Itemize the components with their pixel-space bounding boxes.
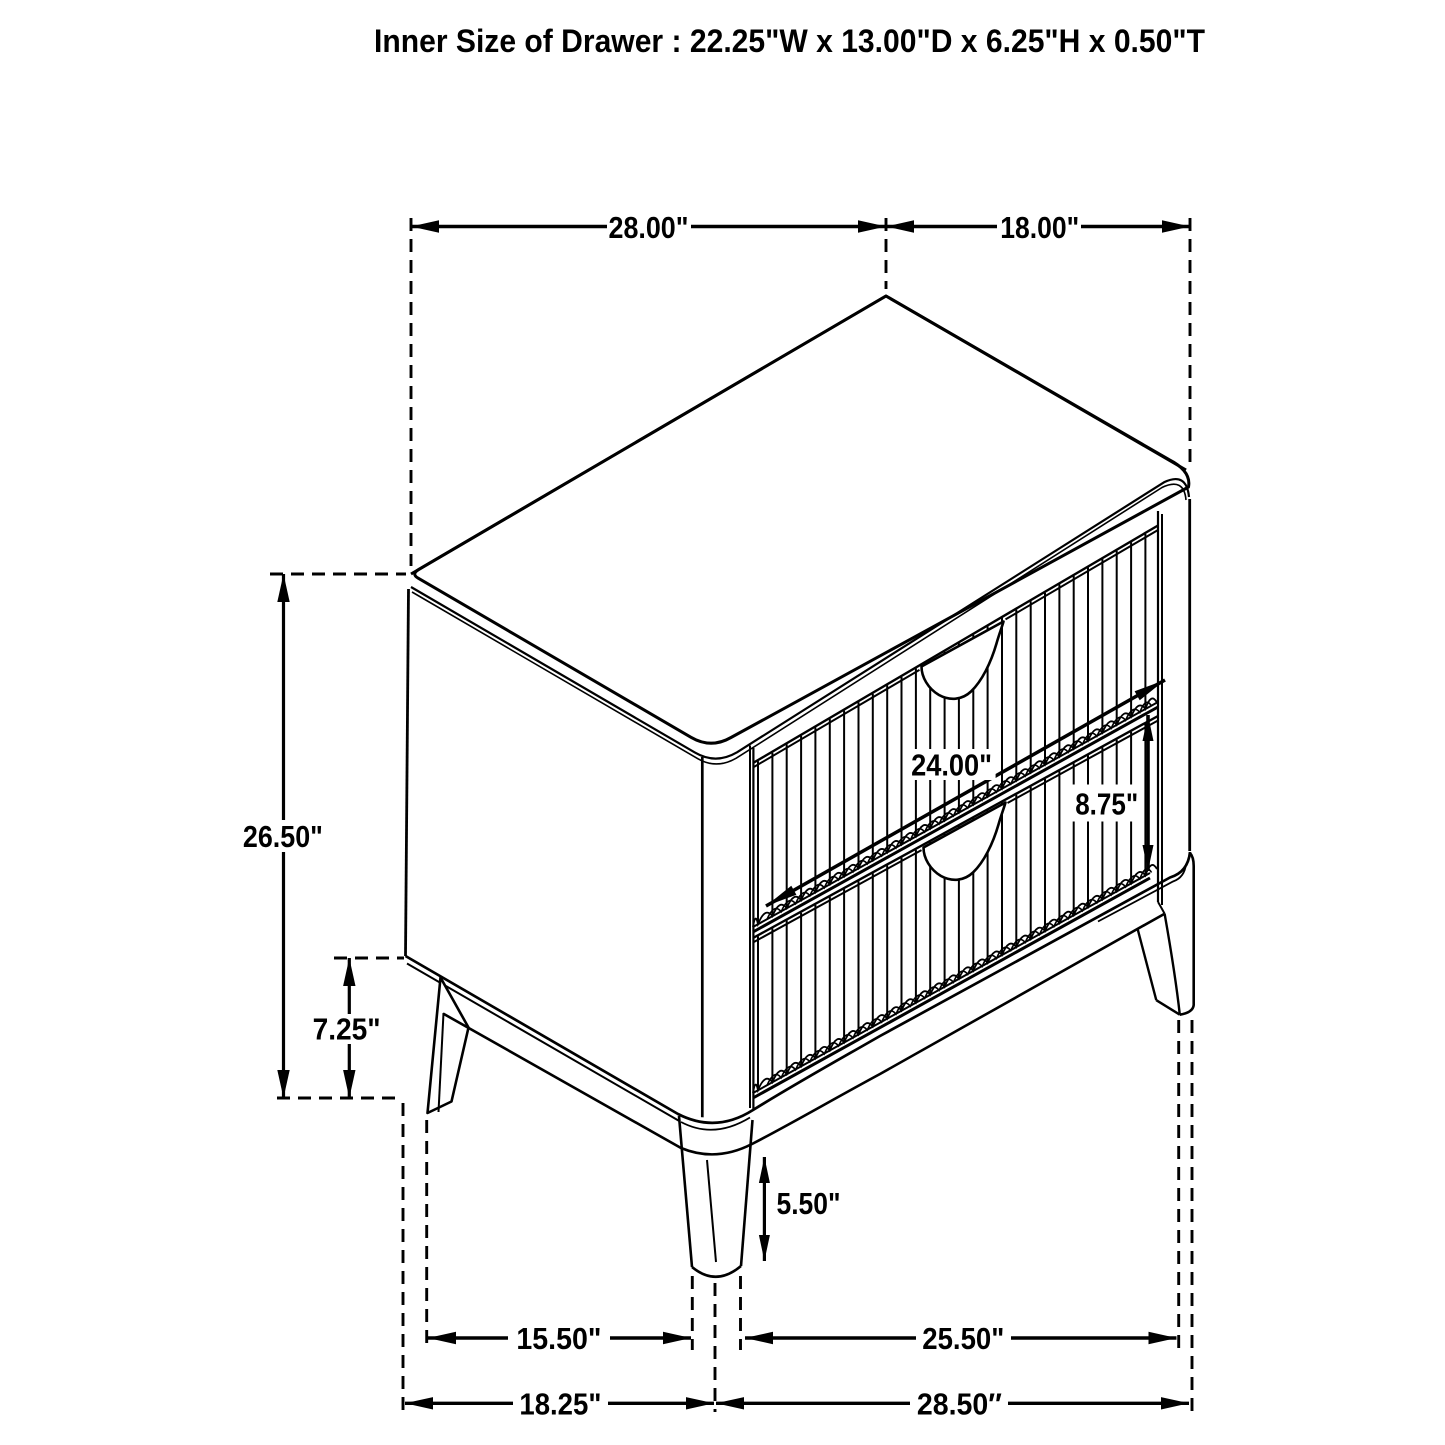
svg-text:8.75": 8.75" <box>1075 787 1138 822</box>
svg-text:25.50": 25.50" <box>922 1321 1004 1356</box>
svg-text:Inner Size of Drawer : 22.25"W: Inner Size of Drawer : 22.25"W x 13.00"D… <box>374 23 1205 59</box>
svg-text:28.00": 28.00" <box>609 210 689 245</box>
svg-text:28.50″: 28.50″ <box>917 1387 1002 1422</box>
svg-text:18.00": 18.00" <box>1000 210 1079 245</box>
svg-text:24.00": 24.00" <box>911 748 992 783</box>
svg-text:18.25": 18.25" <box>519 1387 601 1422</box>
svg-text:15.50": 15.50" <box>516 1321 601 1356</box>
svg-text:5.50": 5.50" <box>777 1186 841 1221</box>
svg-text:7.25": 7.25" <box>313 1011 381 1046</box>
svg-text:26.50": 26.50" <box>243 819 323 854</box>
